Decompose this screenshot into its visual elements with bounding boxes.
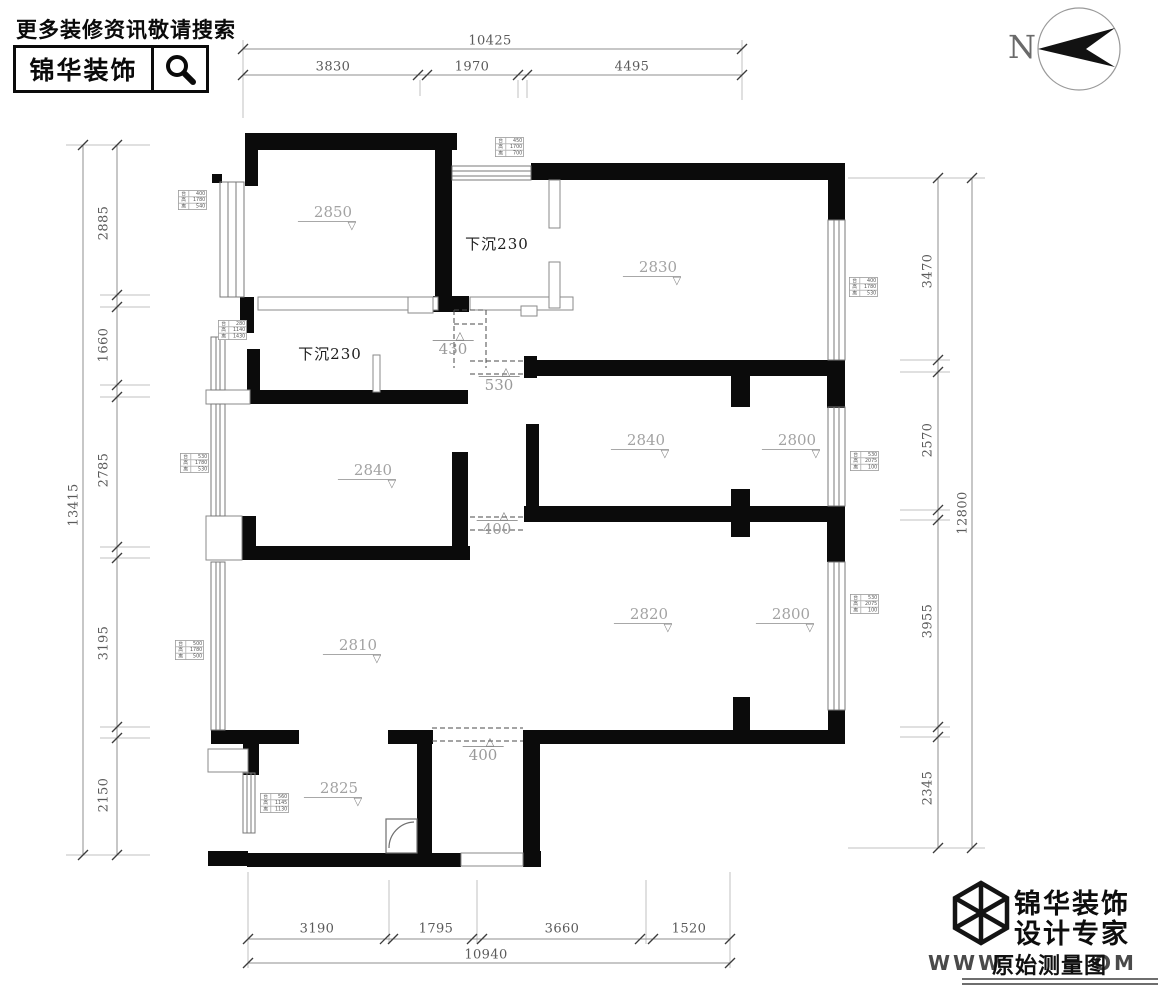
window-tag-row: 离100 <box>851 607 878 613</box>
footer-watermark: 原始测量图 <box>992 948 1107 980</box>
dim-bottom-seg: 3660 <box>545 922 580 937</box>
beam-label-430: △ 430 <box>433 331 474 357</box>
window-tag-row: 台530 <box>181 454 208 460</box>
dim-bottom-total: 10940 <box>464 948 507 963</box>
dim-left-seg: 1660 <box>97 328 112 363</box>
promo-text: 更多装修资讯敬请搜索 <box>16 14 236 44</box>
door-swing <box>386 819 417 853</box>
window-tag-row: 台400 <box>179 191 206 197</box>
dim-bottom-seg: 1795 <box>419 922 454 937</box>
window-tag-row: 离530 <box>850 290 877 296</box>
window-tag: 台400高1780离540 <box>178 190 207 210</box>
dim-right-seg: 2570 <box>921 423 936 458</box>
dim-left-seg: 2150 <box>97 778 112 813</box>
window-tag-row: 离100 <box>851 464 878 470</box>
dim-top-total: 10425 <box>468 34 511 49</box>
window-tag-row: 离500 <box>176 653 203 659</box>
window-tag-row: 台400 <box>850 278 877 284</box>
window-tag-row: 高2075 <box>851 457 878 463</box>
height-triangle-icon: ▽ <box>623 276 681 286</box>
window-tag: 台280高1140离1430 <box>218 320 247 340</box>
window-tag: 台530高2075离100 <box>850 594 879 614</box>
height-triangle-icon: ▽ <box>614 623 672 633</box>
height-triangle-icon: ▽ <box>323 654 381 664</box>
dim-right-total: 12800 <box>956 491 971 534</box>
dim-left-seg: 2785 <box>97 453 112 488</box>
window-tag-row: 台530 <box>851 595 878 601</box>
beam-label-400-entry: △ 400 <box>463 737 504 763</box>
height-label-2810: 2810 ▽ <box>323 638 381 664</box>
height-label-2850: 2850 ▽ <box>298 205 356 231</box>
window-tag-row: 高1780 <box>176 646 203 652</box>
search-icon <box>151 48 206 90</box>
floor-plan-sheet: 更多装修资讯敬请搜索 锦华装饰 N 10425 3830 1970 4495 3… <box>0 0 1158 996</box>
dim-right-seg: 2345 <box>921 771 936 806</box>
window-tag-row: 离1130 <box>261 806 288 812</box>
footer-brand-line2: 设计专家 <box>1014 912 1130 951</box>
beam-label-400-mid: △ 400 <box>477 511 518 537</box>
window-tag-row: 台450 <box>496 138 523 144</box>
height-label-2825: 2825 ▽ <box>304 781 362 807</box>
window-tag-row: 台560 <box>261 794 288 800</box>
window-tag: 台530高1780离530 <box>180 453 209 473</box>
height-label-2830: 2830 ▽ <box>623 260 681 286</box>
ledges-and-sills <box>206 180 573 866</box>
window-tag-row: 高1140 <box>219 326 246 332</box>
sunken-note-left: 下沉230 <box>298 343 362 364</box>
dim-bottom-seg: 1520 <box>672 922 707 937</box>
height-triangle-icon: ▽ <box>338 479 396 489</box>
window-tag-row: 高1780 <box>850 283 877 289</box>
window-tag-row: 高2075 <box>851 600 878 606</box>
window-tag-row: 台530 <box>851 452 878 458</box>
window-tag: 台500高1780离500 <box>175 640 204 660</box>
window-tag-row: 台500 <box>176 641 203 647</box>
beam-label-530: △ 530 <box>479 367 520 393</box>
window-tag-row: 离700 <box>496 150 523 156</box>
sunken-note-top: 下沉230 <box>465 233 529 254</box>
brand-name: 锦华装饰 <box>16 48 151 90</box>
height-label-2820: 2820 ▽ <box>614 607 672 633</box>
dim-left-seg: 2885 <box>97 206 112 241</box>
north-arrow-icon <box>1038 8 1120 90</box>
window-tag: 台560高1145离1130 <box>260 793 289 813</box>
window-tag-row: 高1145 <box>261 799 288 805</box>
dim-bottom-seg: 3190 <box>300 922 335 937</box>
dim-left-total: 13415 <box>67 483 82 526</box>
window-tag-row: 离1430 <box>219 333 246 339</box>
brand-search-box: 锦华装饰 <box>13 45 209 93</box>
window-tag-row: 离540 <box>179 203 206 209</box>
dim-left-seg: 3195 <box>97 626 112 661</box>
height-triangle-icon: ▽ <box>756 623 814 633</box>
height-triangle-icon: ▽ <box>611 449 669 459</box>
north-label: N <box>1008 28 1036 66</box>
height-label-2840-center: 2840 ▽ <box>611 433 669 459</box>
height-label-2800-bottom: 2800 ▽ <box>756 607 814 633</box>
height-label-2800-mid: 2800 ▽ <box>762 433 820 459</box>
dim-top-seg: 1970 <box>455 60 490 75</box>
window-tag-row: 离530 <box>181 466 208 472</box>
floorplan-svg <box>0 0 1158 996</box>
window-tag: 台400高1780离530 <box>849 277 878 297</box>
window-tag-row: 高1780 <box>181 459 208 465</box>
window-tag: 台530高2075离100 <box>850 451 879 471</box>
height-label-2840-left: 2840 ▽ <box>338 463 396 489</box>
dim-right-seg: 3470 <box>921 254 936 289</box>
window-tag: 台450高1700离700 <box>495 137 524 157</box>
window-tag-row: 高1700 <box>496 143 523 149</box>
window-tag-row: 高1780 <box>179 196 206 202</box>
dim-right-seg: 3955 <box>921 604 936 639</box>
dim-top-seg: 4495 <box>615 60 650 75</box>
window-tag-row: 台280 <box>219 321 246 327</box>
cube-logo-icon <box>955 883 1007 943</box>
dim-top-seg: 3830 <box>316 60 351 75</box>
height-triangle-icon: ▽ <box>298 221 356 231</box>
height-triangle-icon: ▽ <box>762 449 820 459</box>
height-triangle-icon: ▽ <box>304 797 362 807</box>
